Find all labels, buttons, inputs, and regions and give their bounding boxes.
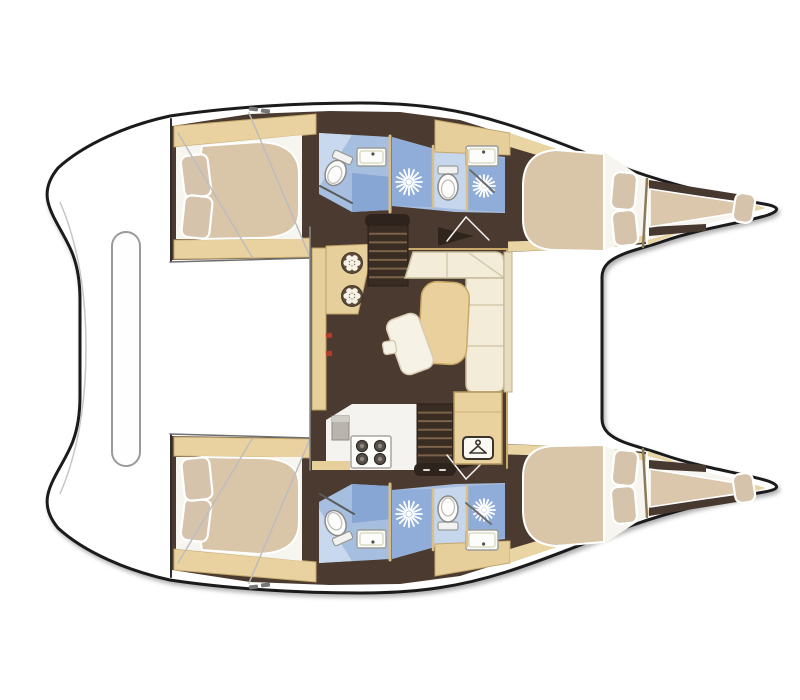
galley-accent-2 [326, 351, 333, 357]
stove-burner-2 [375, 441, 386, 452]
boat [47, 103, 776, 593]
galley-fridge [332, 416, 349, 440]
galley-sink-2 [342, 286, 363, 307]
aft-cabin-pillow-1 [180, 154, 212, 199]
aft-head-sink [357, 530, 386, 548]
stove-burner-4 [375, 454, 386, 465]
galley-side-counter [312, 248, 326, 410]
fwd-head-toilet [438, 166, 458, 200]
aft-cabin-trim-bottom [174, 437, 316, 458]
stove-burner-1 [357, 441, 368, 452]
galley-accent-1 [326, 333, 333, 339]
galley-stove [351, 436, 391, 468]
sofa-seat-aft [405, 252, 504, 278]
fwd-cabin-pillow-2 [611, 209, 639, 246]
aft-head-floor-deep [352, 484, 390, 523]
forepeak-pillow [732, 192, 756, 224]
aft-head-floor-deep [352, 173, 390, 212]
sofa-seat-fwd [466, 278, 504, 392]
catamaran-floorplan-image [0, 0, 800, 700]
aft-cabin-pillow-2 [181, 195, 213, 240]
aft-head-sink [357, 148, 386, 166]
catamaran-floorplan [0, 0, 800, 700]
salon-side-table [382, 340, 397, 355]
aft-cabin-pillow-2 [181, 457, 213, 502]
fwd-head-shower-rose-fwd [473, 175, 495, 197]
aft-cabin-trim-bottom [174, 238, 316, 259]
sofa-backrest [504, 252, 512, 392]
fwd-head-shower-rose-aft [396, 501, 422, 527]
cockpit-table [112, 232, 140, 466]
stove-burner-3 [357, 454, 368, 465]
forepeak-pillow [732, 472, 756, 504]
aft-cabin-pillow-1 [180, 498, 212, 543]
fwd-cabin-pillow-1 [610, 486, 637, 525]
fwd-cabin-pillow-1 [610, 172, 637, 211]
galley-sink-1 [342, 253, 363, 274]
fwd-head-shower-rose-aft [396, 169, 422, 195]
fwd-cabin-pillow-2 [611, 449, 639, 486]
fwd-cabin-mattress [523, 150, 604, 251]
fwd-cabin-mattress [523, 445, 604, 546]
port-companionway-stairs [368, 225, 408, 286]
fwd-head-sink [466, 530, 498, 550]
fwd-head-sink [466, 146, 498, 166]
fwd-head-toilet [438, 496, 458, 530]
stbd-companionway-landing [414, 463, 456, 476]
salon-bottom-trim [312, 461, 350, 470]
